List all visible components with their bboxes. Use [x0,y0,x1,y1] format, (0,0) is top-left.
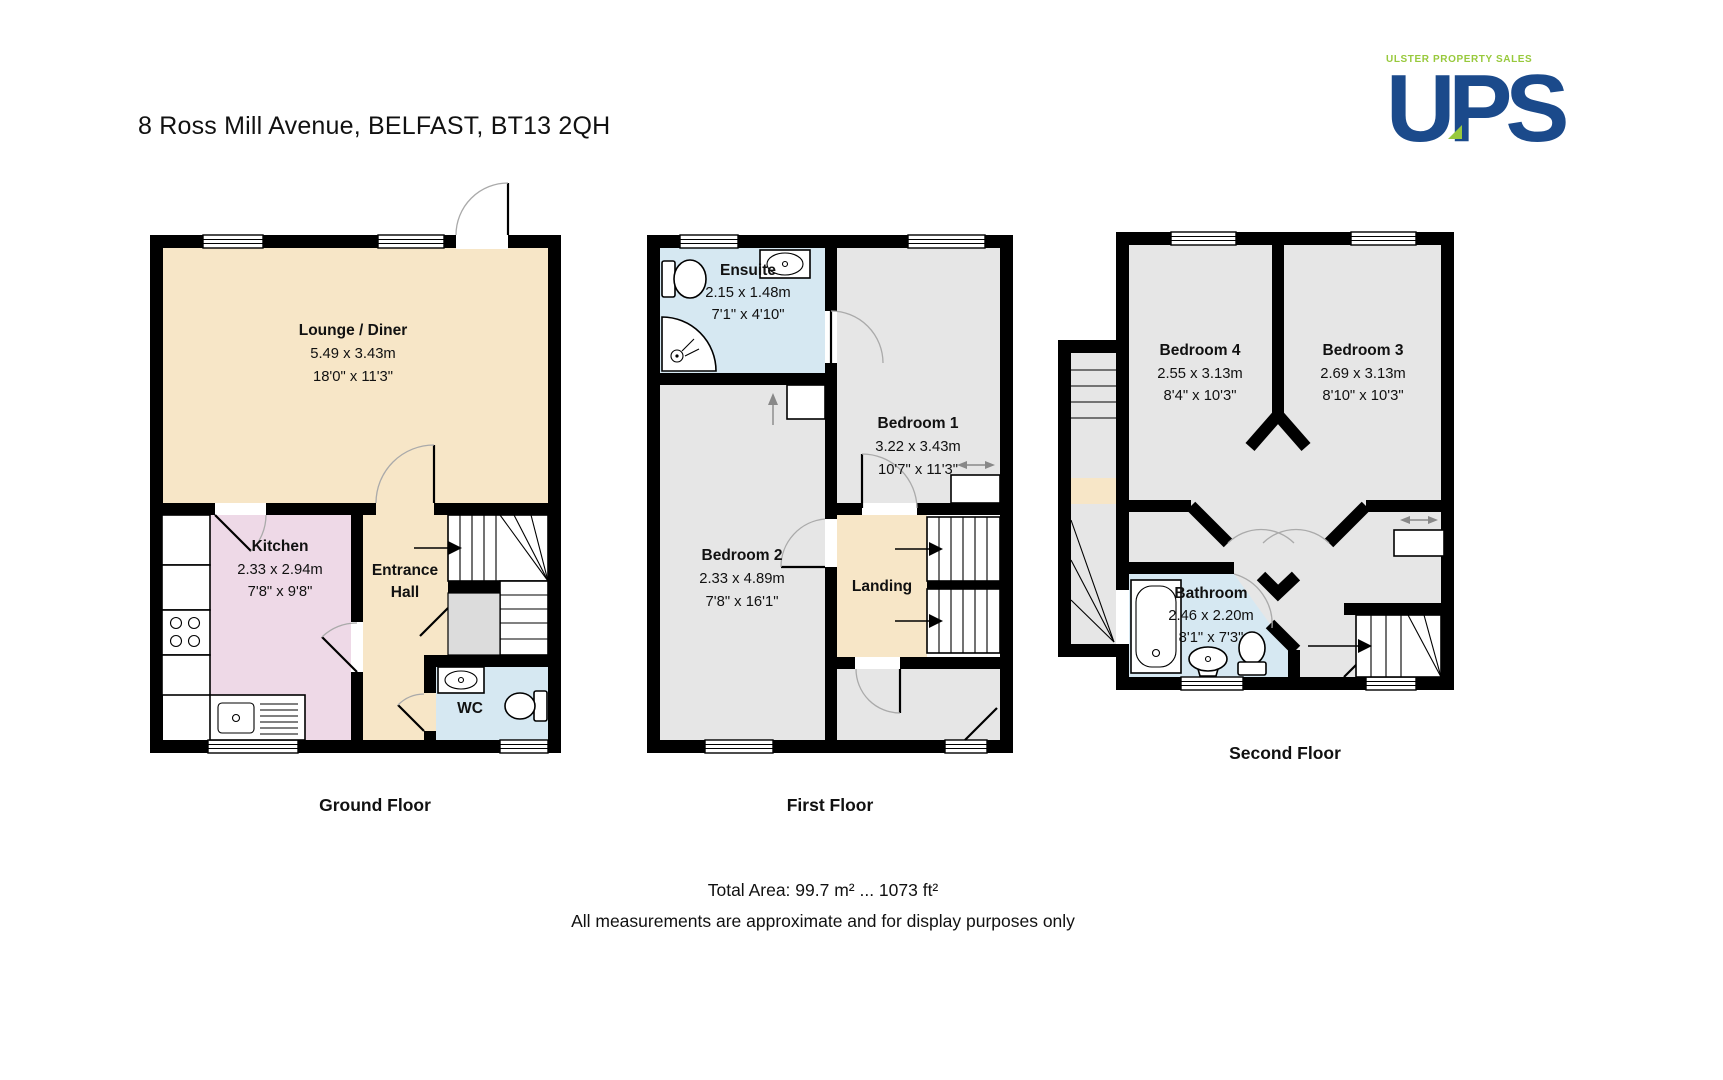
room-dim-metric: 5.49 x 3.43m [310,346,396,362]
room-label-bedroom4: Bedroom 4 [1160,342,1241,359]
second-floor-label: Second Floor [1229,743,1341,764]
window [945,740,987,753]
window [1366,677,1416,690]
logo-ups-text: UPS [1386,65,1596,153]
room-label-bedroom3: Bedroom 3 [1323,342,1404,359]
room-label-entrance-hall: Entrance [372,562,439,579]
window [500,740,548,753]
room-dim-imperial: 8'4" x 10'3" [1164,388,1237,404]
sink-icon [438,667,484,693]
window [908,235,985,248]
room-label-wc: WC [457,700,483,717]
window [1171,232,1236,245]
ground-floor-plan: Lounge / Diner 5.49 x 3.43m 18'0" x 11'3… [148,163,563,803]
window [680,235,738,248]
total-area-text: Total Area: 99.7 m² ... 1073 ft² [708,880,939,901]
room-dim-imperial: 7'8" x 16'1" [706,594,779,610]
room-dim-imperial: 8'1" x 7'3" [1179,630,1244,646]
agency-logo: ULSTER PROPERTY SALES UPS [1386,54,1596,153]
front-door [456,183,508,249]
window [1351,232,1416,245]
room-dim-metric: 2.55 x 3.13m [1157,366,1243,382]
window [208,740,298,753]
room-label-bathroom: Bathroom [1174,585,1247,602]
room-label-lounge: Lounge / Diner [299,322,408,339]
room-label-ensuite: Ensuite [720,262,776,279]
disclaimer-text: All measurements are approximate and for… [571,911,1075,932]
room-label-bedroom1: Bedroom 1 [878,415,959,432]
kitchen-sink-icon [210,695,305,740]
room-dim-metric: 2.69 x 3.13m [1320,366,1406,382]
window [203,235,263,248]
room-dim-imperial: 7'1" x 4'10" [712,307,785,323]
toilet-icon [662,260,706,298]
window [378,235,444,248]
room-dim-metric: 2.15 x 1.48m [705,285,791,301]
room-dim-metric: 2.33 x 2.94m [237,562,323,578]
hob-icon [162,610,210,655]
room-dim-metric: 3.22 x 3.43m [875,439,961,455]
second-floor-plan: Bedroom 4 2.55 x 3.13m 8'4" x 10'3" Bedr… [1056,200,1466,760]
toilet-icon [505,691,547,721]
room-dim-metric: 2.46 x 2.20m [1168,608,1254,624]
page-title: 8 Ross Mill Avenue, BELFAST, BT13 2QH [138,112,610,141]
ground-floor-label: Ground Floor [319,795,431,816]
room-dim-imperial: 8'10" x 10'3" [1322,388,1403,404]
room-label-landing: Landing [852,578,912,595]
room-label-bedroom2: Bedroom 2 [702,547,783,564]
second-stairwell-strip [1058,340,1116,657]
window [705,740,773,753]
room-dim-metric: 2.33 x 4.89m [699,571,785,587]
first-floor-plan: Ensuite 2.15 x 1.48m 7'1" x 4'10" Bedroo… [645,163,1015,803]
room-dim-imperial: 18'0" x 11'3" [313,369,393,385]
first-floor-label: First Floor [787,795,874,816]
logo-green-triangle-icon [1448,125,1462,139]
room-dim-imperial: 7'8" x 9'8" [248,584,313,600]
room-dim-imperial: 10'7" x 11'3" [878,462,958,478]
window [1181,677,1243,690]
room-label-kitchen: Kitchen [252,538,309,555]
understairs-cupboard [448,593,500,655]
room-label-entrance-hall-2: Hall [391,584,419,601]
